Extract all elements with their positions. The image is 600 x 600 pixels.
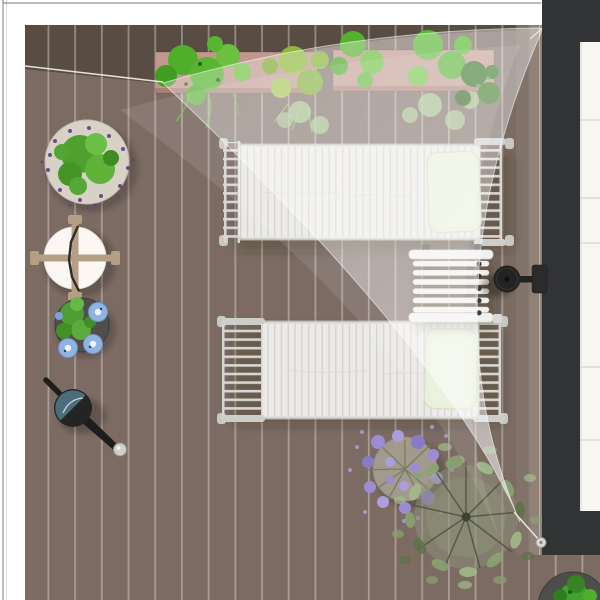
sun-lounger-2-head-rack: [221, 318, 265, 422]
tree-trunk: [462, 513, 471, 522]
watering-can-sprinkler-head: [114, 443, 127, 456]
wall: [542, 0, 600, 555]
terrace-plan-canvas: [0, 0, 600, 600]
wall-lamp-bracket: [532, 265, 547, 293]
